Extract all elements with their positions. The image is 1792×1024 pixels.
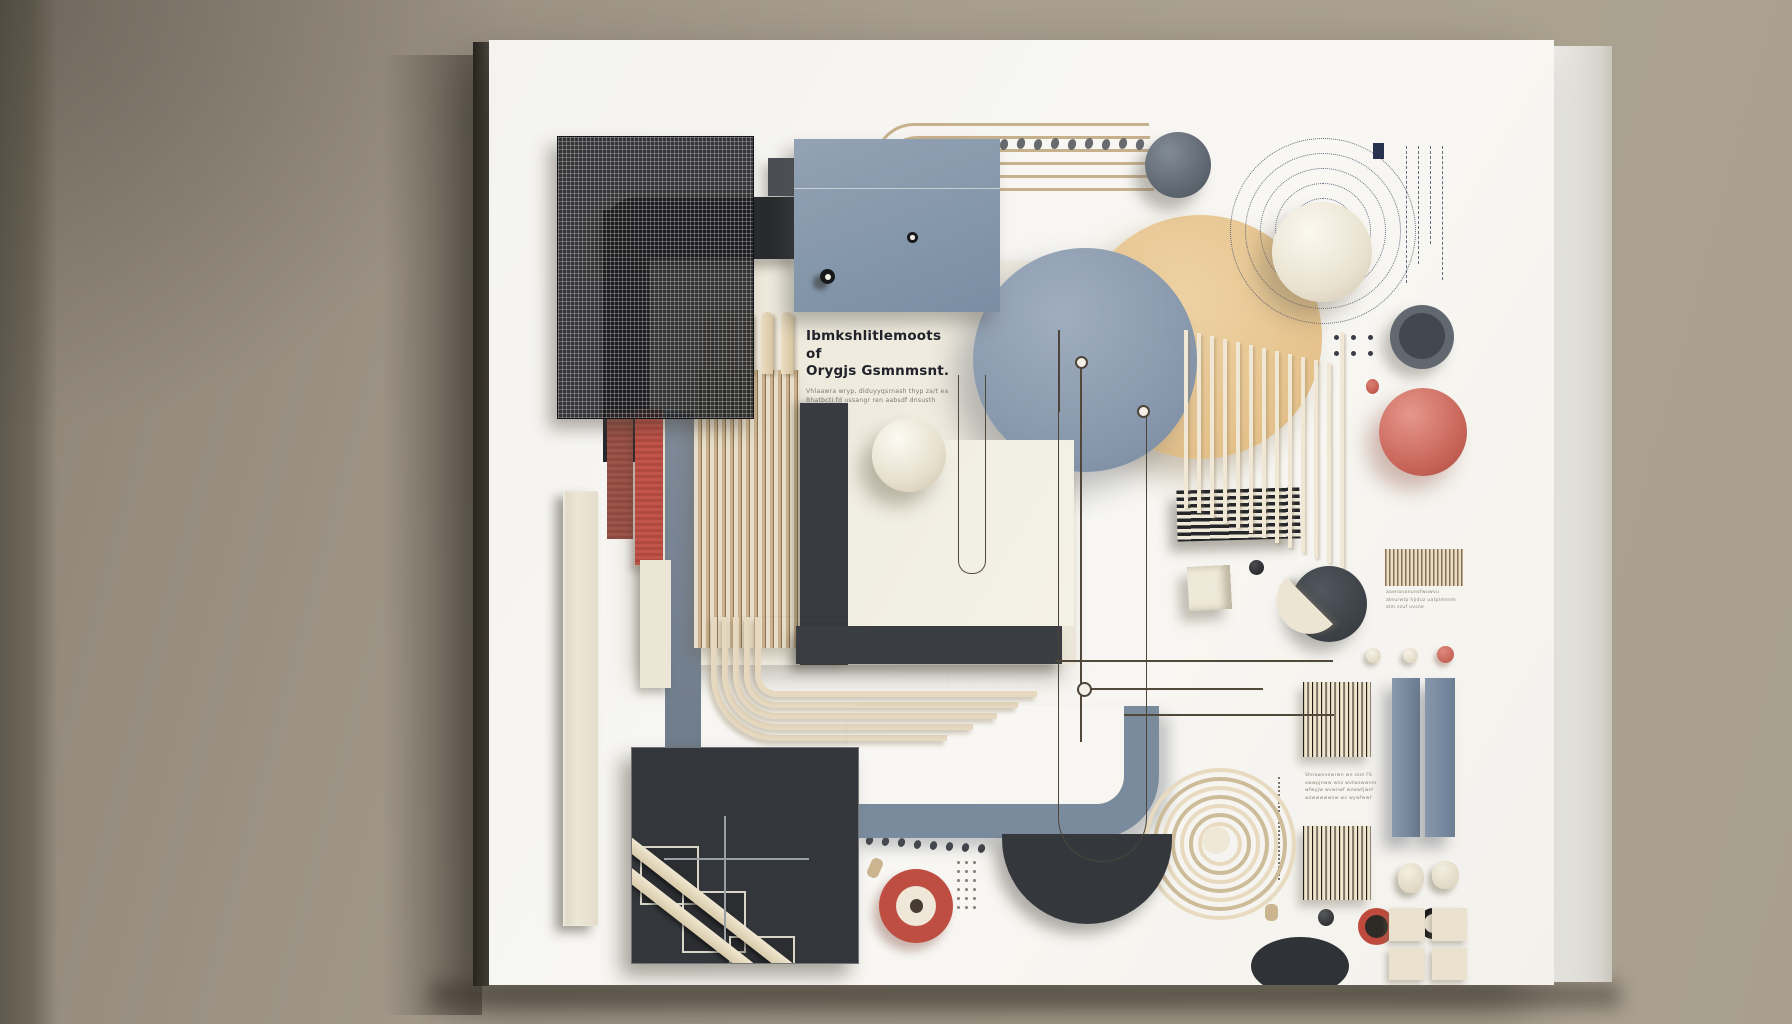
tiny-text-line: Shnawevewrwn wn szst FS	[1305, 772, 1377, 780]
donut-inner	[1399, 313, 1445, 359]
gray-sphere	[1145, 132, 1211, 198]
cream-stick	[1262, 348, 1266, 538]
cream-button	[1398, 863, 1424, 893]
dashed-column	[1430, 146, 1431, 244]
cream-stick	[1275, 351, 1279, 543]
dot-icon	[897, 838, 906, 849]
wire-eyelet-icon	[1075, 356, 1088, 369]
canvas-board: Ibmkshlitlemoots of Orygjs Gsmnmsnt. Vhl…	[489, 40, 1554, 985]
hairline	[724, 816, 726, 941]
wire-vertical	[1058, 330, 1060, 412]
cream-stick	[1197, 333, 1201, 513]
windowpane-square	[1389, 908, 1467, 980]
tiny-text-block: Shnawevewrwn wn szst FS awwpjnww wnz wvt…	[1305, 772, 1377, 803]
fine-striped-chip	[1385, 549, 1463, 586]
canvas-right-edge	[1554, 46, 1612, 982]
dot-icon	[965, 888, 968, 891]
ridge-tube	[781, 312, 793, 374]
dot-icon	[1368, 335, 1373, 340]
striped-square	[1303, 682, 1371, 757]
dot-icon	[945, 841, 954, 852]
artwork-photo: Ibmkshlitlemoots of Orygjs Gsmnmsnt. Vhl…	[0, 0, 1792, 1024]
cream-stick	[1340, 332, 1344, 568]
hairline	[664, 858, 809, 860]
canvas-cast-shadow	[382, 55, 482, 1015]
cream-stick	[1288, 354, 1292, 548]
dot-icon	[973, 861, 976, 864]
slate-vertical-bar	[1425, 678, 1455, 837]
dot-icon	[973, 870, 976, 873]
dot-icon	[973, 888, 976, 891]
cream-stick	[1327, 363, 1331, 563]
dot-icon	[965, 861, 968, 864]
rivet-icon	[907, 232, 918, 243]
cream-bead	[1366, 648, 1381, 663]
wire-horizontal	[1085, 688, 1263, 690]
pseudo-heading-line1: Ibmkshlitlemoots of	[806, 328, 956, 363]
dot-icon	[965, 906, 968, 909]
red-bead	[1366, 379, 1379, 394]
dot-icon	[961, 842, 970, 853]
dot-icon	[965, 879, 968, 882]
canvas-bottom-shadow	[430, 982, 1620, 1008]
pane	[1432, 908, 1468, 941]
tiny-text-block: aaenananunofwuwvu ateurwtp hjiduz uatplm…	[1386, 589, 1476, 612]
pseudo-body-line1: Vhlaawra wryp, dlduyyqsrnash thyp za/t e…	[806, 387, 956, 397]
cream-stick	[1301, 357, 1305, 553]
cream-bead	[1403, 648, 1418, 663]
tan-cylinder-small	[1265, 904, 1278, 921]
tiny-text-line: alm szuf uvsne	[1386, 604, 1476, 612]
dot-icon	[929, 840, 938, 851]
cream-stick	[1223, 339, 1227, 523]
dashed-column	[1406, 146, 1407, 283]
dark-accent-square	[1373, 143, 1384, 159]
dot-icon	[1351, 351, 1356, 356]
wire-eyelet-icon	[1077, 682, 1092, 697]
pseudo-text-block: Ibmkshlitlemoots of Orygjs Gsmnmsnt. Vhl…	[806, 328, 956, 406]
dot-icon	[957, 906, 960, 909]
tiny-text-line: awwpjnww wnz wvtwzwwnm	[1305, 780, 1377, 788]
tiny-text-line: aaenananunofwuwvu	[1386, 589, 1476, 597]
dot-icon	[977, 844, 986, 855]
donut-hole	[910, 899, 923, 913]
cream-stick	[1184, 330, 1188, 508]
mesh-texture-square	[557, 136, 754, 419]
tiny-text-line: wzwwwwwnw wv wywfwwf	[1305, 795, 1377, 803]
pane	[1389, 948, 1425, 981]
cream-stick	[1236, 342, 1240, 528]
wire-hairpin-small	[958, 375, 986, 574]
cream-vertical-bar-small	[640, 560, 671, 688]
staircase-dark-square	[631, 747, 859, 964]
slate-blue-plate	[794, 139, 1000, 312]
cream-cube	[1187, 565, 1232, 611]
dark-disc	[1251, 937, 1349, 985]
rivet-icon	[820, 269, 835, 284]
dot-icon	[957, 888, 960, 891]
red-knit-strip	[635, 409, 663, 565]
gray-disc-donut	[1390, 305, 1454, 369]
dot-icon	[1334, 335, 1339, 340]
tiny-text-line: wfwyjw wvwnwf wzwwfjwsf	[1305, 787, 1377, 795]
pane	[1389, 908, 1425, 941]
maroon-knit-strip	[607, 411, 633, 539]
dot-icon	[973, 897, 976, 900]
pane	[1432, 948, 1468, 981]
cream-button	[1432, 861, 1459, 889]
dashed-column	[1418, 146, 1419, 264]
dot-icon	[957, 897, 960, 900]
ridge-tube	[761, 312, 773, 374]
tiny-text-line: ateurwtp hjiduz uatplmnnm	[1386, 597, 1476, 605]
dot-icon	[973, 879, 976, 882]
cream-sphere	[1272, 202, 1372, 302]
coral-bead	[1437, 646, 1454, 663]
dot-icon	[1334, 351, 1339, 356]
wire-horizontal	[1055, 660, 1333, 662]
wire-horizontal	[1124, 714, 1334, 716]
cream-stick	[1314, 360, 1318, 558]
dot-icon	[1351, 335, 1356, 340]
rivet-core	[910, 235, 914, 239]
striped-square	[1303, 826, 1371, 900]
cream-vertical-bar	[563, 491, 598, 926]
canvas-left-edge	[473, 42, 489, 986]
dot-icon	[965, 897, 968, 900]
black-bead	[1249, 560, 1264, 575]
pseudo-heading-line2: Orygjs Gsmnmsnt.	[806, 363, 956, 381]
dashed-column	[1442, 146, 1443, 280]
dot-icon	[957, 861, 960, 864]
rivet-core	[825, 274, 831, 280]
wire-hairpin-large	[1058, 411, 1147, 862]
dot-icon	[1368, 351, 1373, 356]
plate-seam-line	[794, 188, 1000, 189]
dark-bead	[1318, 909, 1334, 926]
coil-center	[1202, 826, 1230, 854]
cream-stick	[1210, 336, 1214, 518]
slate-vertical-bar	[1392, 678, 1420, 837]
dot-icon	[913, 839, 922, 850]
tan-cylinder-small	[865, 856, 884, 879]
dot-icon	[973, 906, 976, 909]
red-donut	[879, 869, 953, 943]
dot-icon	[957, 879, 960, 882]
dot-icon	[965, 870, 968, 873]
dot-icon	[957, 870, 960, 873]
wire-eyelet-icon	[1137, 405, 1150, 418]
white-sphere	[872, 418, 946, 492]
coral-sphere	[1379, 388, 1467, 476]
curved-tube	[755, 617, 1037, 697]
cream-stick	[1249, 345, 1253, 533]
